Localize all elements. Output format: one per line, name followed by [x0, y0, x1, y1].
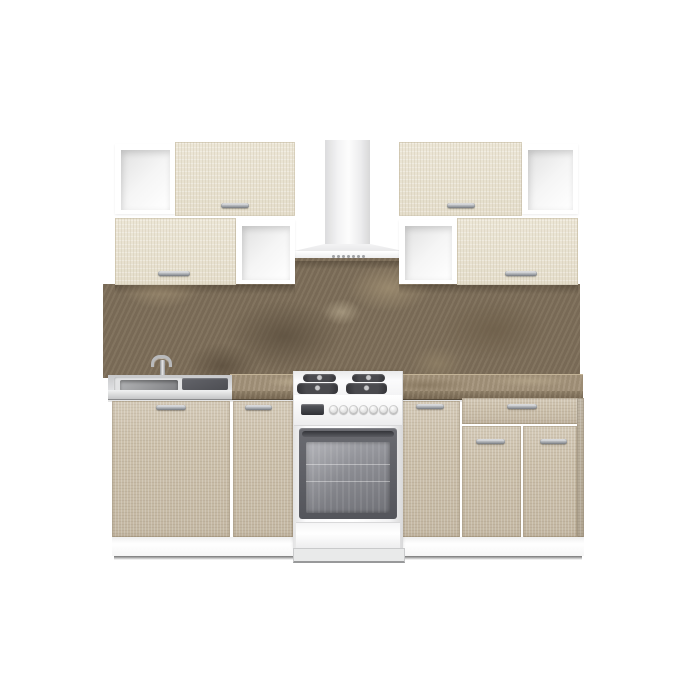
cabinet-handle [158, 271, 190, 276]
range-display [301, 404, 324, 415]
range-knob [339, 405, 348, 414]
open-shelf-niche [236, 220, 295, 284]
kitchen-set-product-image [0, 0, 700, 700]
range-knob [369, 405, 378, 414]
hood-button-icon [342, 255, 345, 258]
plinth [402, 537, 584, 556]
countertop-surface [230, 374, 583, 392]
oven-rack-line [306, 464, 390, 465]
niche-interior [242, 226, 290, 280]
open-shelf-niche [115, 144, 175, 214]
hood-button-icon [357, 255, 360, 258]
open-shelf-niche [522, 144, 578, 214]
cabinet-handle [505, 271, 537, 276]
hood-button-icon [352, 255, 355, 258]
burner-grate-icon [297, 383, 338, 394]
range-knob [389, 405, 398, 414]
niche-interior [528, 150, 573, 210]
oven-rack-line [306, 481, 390, 482]
cabinet-handle [156, 405, 186, 410]
open-shelf-niche [399, 220, 457, 284]
hood-button-icon [347, 255, 350, 258]
range-storage-drawer [296, 522, 400, 549]
wall-cabinet-shadow [399, 285, 578, 294]
range-base [293, 548, 405, 563]
burner-grate-icon [352, 374, 385, 382]
base-drawer-front [462, 398, 583, 424]
hood-canopy [294, 244, 403, 251]
base-door-narrow-right [402, 401, 460, 537]
hood-button-icon [332, 255, 335, 258]
cabinet-end-panel [577, 398, 584, 537]
hood-button-icon [337, 255, 340, 258]
oven-handle-bar [302, 431, 394, 437]
niche-interior [405, 226, 452, 280]
cabinet-handle [540, 439, 567, 444]
range-knob [379, 405, 388, 414]
sink-drainboard [182, 378, 228, 390]
wall-cabinet-shadow [115, 285, 295, 294]
burner-grate-icon [346, 383, 387, 394]
hood-shadow [294, 261, 403, 269]
cabinet-handle [221, 203, 249, 208]
niche-interior [121, 150, 170, 210]
cabinet-handle [507, 404, 537, 409]
cabinet-handle [416, 404, 444, 409]
cabinet-handle [245, 405, 272, 410]
hood-button-icon [362, 255, 365, 258]
base-door-narrow-left [233, 401, 293, 537]
range-knob [329, 405, 338, 414]
range-knob [359, 405, 368, 414]
burner-grate-icon [303, 374, 336, 382]
cabinet-handle [447, 203, 475, 208]
hood-duct [325, 140, 370, 245]
range-knob [349, 405, 358, 414]
plinth [112, 537, 293, 556]
oven-window [306, 442, 390, 513]
cabinet-handle [476, 439, 505, 444]
base-door-sink [112, 401, 230, 537]
